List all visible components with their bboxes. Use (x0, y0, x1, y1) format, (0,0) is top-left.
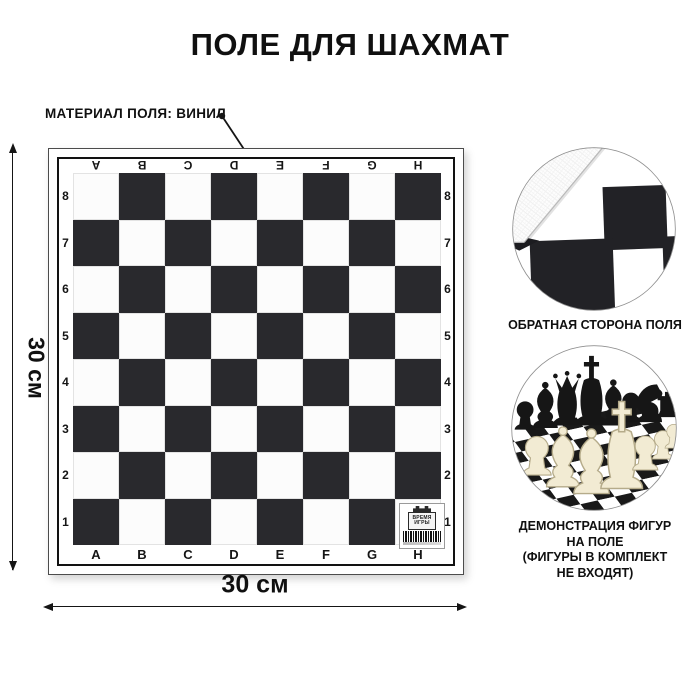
board-square-g5 (349, 313, 395, 360)
file-label: G (349, 157, 395, 173)
ranks-right: 87654321 (440, 173, 455, 545)
rank-label: 6 (58, 266, 73, 313)
board-square-g8 (349, 173, 395, 220)
file-label: H (395, 157, 441, 173)
product-card: ПОЛЕ ДЛЯ ШАХМАТ МАТЕРИАЛ ПОЛЯ: ВИНИЛ ABC… (0, 0, 700, 700)
board-square-e7 (257, 220, 303, 267)
board-square-g3 (349, 406, 395, 453)
rank-label: 1 (58, 499, 73, 546)
board-square-e5 (257, 313, 303, 360)
board-square-e2 (257, 452, 303, 499)
board-square-f4 (303, 359, 349, 406)
rank-label: 5 (440, 313, 455, 360)
height-dimension-label: 30 см (23, 337, 50, 399)
board-square-f1 (303, 499, 349, 546)
back-side-photo (511, 146, 677, 312)
rank-label: 3 (58, 406, 73, 453)
file-label: E (257, 546, 303, 563)
board-square-d4 (211, 359, 257, 406)
rank-label: 2 (440, 452, 455, 499)
rank-label: 6 (440, 266, 455, 313)
arrow-left-icon (43, 603, 53, 611)
board-square-g6 (349, 266, 395, 313)
board-square-g7 (349, 220, 395, 267)
board-square-c4 (165, 359, 211, 406)
rank-label: 7 (440, 220, 455, 267)
board-square-b8 (119, 173, 165, 220)
board-square-a3 (73, 406, 119, 453)
board-square-b2 (119, 452, 165, 499)
board-square-a2 (73, 452, 119, 499)
board-square-h6 (395, 266, 441, 313)
board-square-g2 (349, 452, 395, 499)
board-square-d7 (211, 220, 257, 267)
file-label: A (73, 546, 119, 563)
rank-label: 8 (440, 173, 455, 220)
board-square-h4 (395, 359, 441, 406)
board-square-e1 (257, 499, 303, 546)
file-label: F (303, 546, 349, 563)
pieces-demo-caption: ДЕМОНСТРАЦИЯ ФИГУР НА ПОЛЕ (ФИГУРЫ В КОМ… (502, 519, 688, 581)
file-label: E (257, 157, 303, 173)
file-label: F (303, 157, 349, 173)
board-square-b1 (119, 499, 165, 546)
board-square-d8 (211, 173, 257, 220)
arrow-up-icon (9, 143, 17, 153)
chess-board: ABCDEFGH ABCDEFGH 87654321 87654321 ВРЕМ… (48, 148, 464, 575)
board-square-e3 (257, 406, 303, 453)
file-label: B (119, 546, 165, 563)
material-annotation: МАТЕРИАЛ ПОЛЯ: ВИНИЛ (45, 106, 226, 121)
board-square-b4 (119, 359, 165, 406)
board-square-d6 (211, 266, 257, 313)
board-square-a8 (73, 173, 119, 220)
board-square-d3 (211, 406, 257, 453)
barcode-icon (403, 531, 441, 542)
barcode-digits (403, 542, 441, 545)
board-square-g4 (349, 359, 395, 406)
ranks-left: 87654321 (58, 173, 73, 545)
checkerboard (73, 173, 441, 545)
height-dimension-line (12, 146, 13, 570)
board-square-a1 (73, 499, 119, 546)
board-square-c6 (165, 266, 211, 313)
caption-line: НА ПОЛЕ (502, 535, 688, 551)
brand-emblem-icon: ВРЕМЯ ИГРЫ (408, 506, 436, 530)
board-square-f7 (303, 220, 349, 267)
files-bottom: ABCDEFGH (73, 546, 441, 563)
board-square-h5 (395, 313, 441, 360)
pieces-demo-photo (510, 344, 678, 512)
board-square-c7 (165, 220, 211, 267)
caption-line: ДЕМОНСТРАЦИЯ ФИГУР (502, 519, 688, 535)
files-top: ABCDEFGH (73, 157, 441, 173)
back-side-caption: ОБРАТНАЯ СТОРОНА ПОЛЯ (504, 318, 686, 332)
board-square-h8 (395, 173, 441, 220)
board-square-g1 (349, 499, 395, 546)
board-square-d5 (211, 313, 257, 360)
board-square-a4 (73, 359, 119, 406)
page-title: ПОЛЕ ДЛЯ ШАХМАТ (0, 27, 700, 63)
board-square-b3 (119, 406, 165, 453)
board-square-c8 (165, 173, 211, 220)
file-label: G (349, 546, 395, 563)
rank-label: 8 (58, 173, 73, 220)
board-square-f3 (303, 406, 349, 453)
crown-icon (413, 506, 431, 512)
rank-label: 4 (58, 359, 73, 406)
rank-label: 5 (58, 313, 73, 360)
board-square-h2 (395, 452, 441, 499)
board-square-c1 (165, 499, 211, 546)
board-square-b6 (119, 266, 165, 313)
board-square-h3 (395, 406, 441, 453)
board-square-a6 (73, 266, 119, 313)
file-label: A (73, 157, 119, 173)
board-square-a7 (73, 220, 119, 267)
width-dimension-line (46, 606, 464, 607)
arrow-down-icon (9, 561, 17, 571)
file-label: D (211, 546, 257, 563)
file-label: B (119, 157, 165, 173)
brand-shield: ВРЕМЯ ИГРЫ (408, 512, 436, 530)
board-square-b5 (119, 313, 165, 360)
board-square-h7 (395, 220, 441, 267)
brand-badge: ВРЕМЯ ИГРЫ (399, 503, 445, 549)
board-square-a5 (73, 313, 119, 360)
file-label: C (165, 157, 211, 173)
board-square-f2 (303, 452, 349, 499)
caption-line: НЕ ВХОДЯТ) (502, 566, 688, 582)
brand-name-bottom: ИГРЫ (414, 521, 429, 527)
arrow-right-icon (457, 603, 467, 611)
board-square-f6 (303, 266, 349, 313)
board-square-f5 (303, 313, 349, 360)
board-square-e6 (257, 266, 303, 313)
file-label: C (165, 546, 211, 563)
board-square-c5 (165, 313, 211, 360)
board-square-e8 (257, 173, 303, 220)
rank-label: 2 (58, 452, 73, 499)
board-square-c3 (165, 406, 211, 453)
rank-label: 4 (440, 359, 455, 406)
board-square-c2 (165, 452, 211, 499)
rank-label: 3 (440, 406, 455, 453)
board-square-d2 (211, 452, 257, 499)
width-dimension-label: 30 см (221, 571, 288, 600)
rank-label: 7 (58, 220, 73, 267)
board-square-d1 (211, 499, 257, 546)
file-label: D (211, 157, 257, 173)
caption-line: (ФИГУРЫ В КОМПЛЕКТ (502, 550, 688, 566)
board-square-f8 (303, 173, 349, 220)
board-square-e4 (257, 359, 303, 406)
board-square-b7 (119, 220, 165, 267)
